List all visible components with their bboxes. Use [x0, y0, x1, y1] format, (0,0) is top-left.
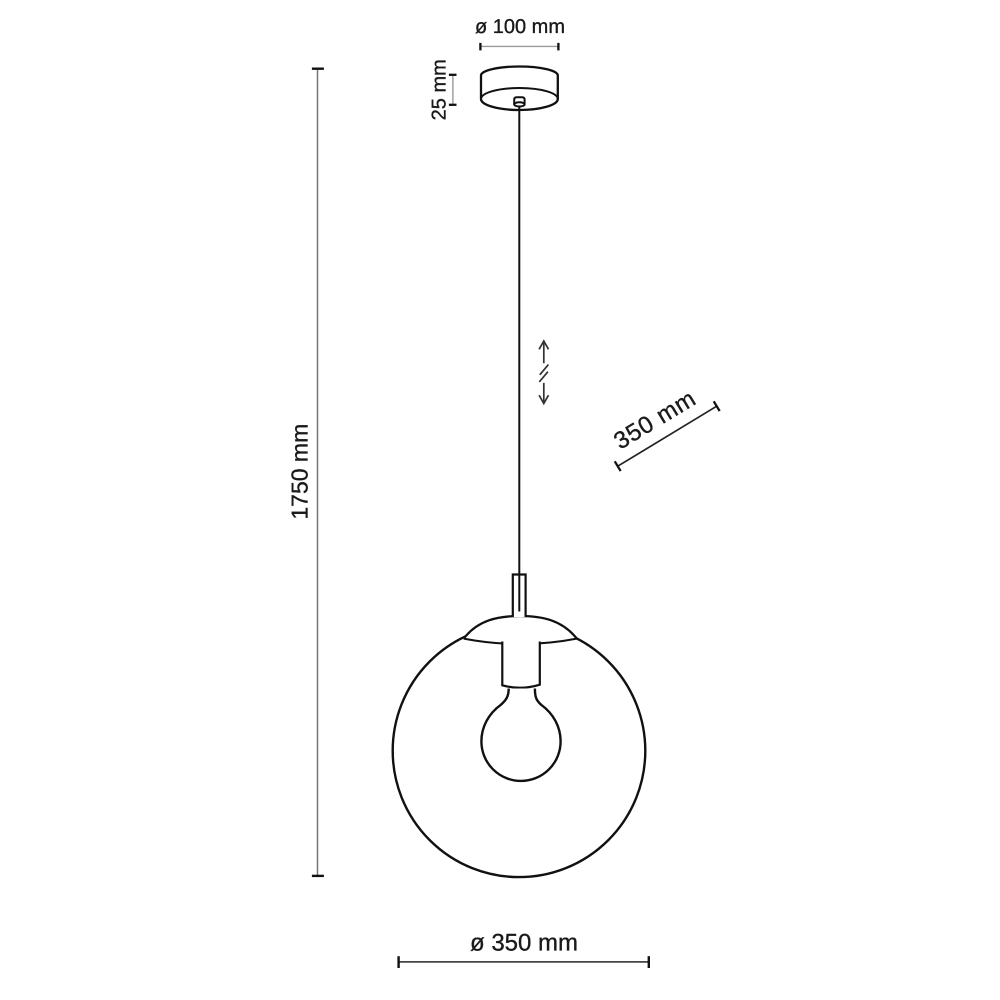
svg-text:ø 350 mm: ø 350 mm [470, 930, 578, 957]
svg-text:1750 mm: 1750 mm [287, 424, 313, 520]
svg-text:ø 100 mm: ø 100 mm [475, 16, 565, 38]
svg-text:25 mm: 25 mm [429, 59, 451, 120]
